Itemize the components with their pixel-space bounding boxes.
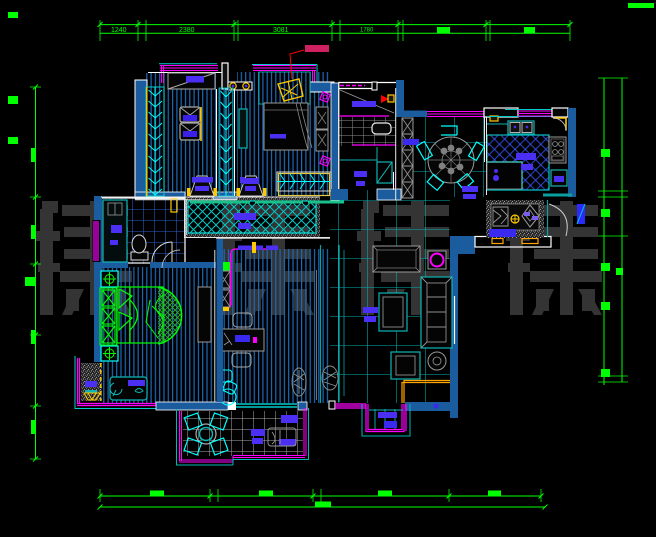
svg-text:1240: 1240 — [111, 27, 127, 34]
svg-text:2380: 2380 — [179, 27, 195, 34]
svg-text:3081: 3081 — [273, 27, 289, 34]
svg-text:1780: 1780 — [360, 28, 374, 34]
